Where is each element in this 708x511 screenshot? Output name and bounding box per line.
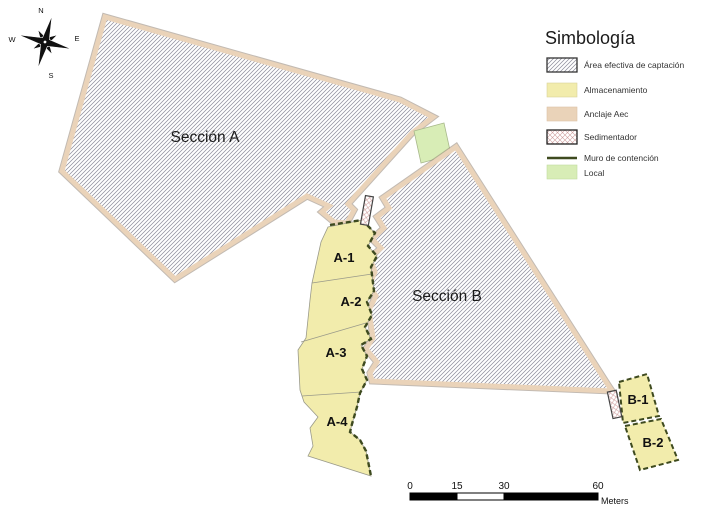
legend-hatch-icon [547, 58, 577, 72]
compass-rose: N E S W [8, 6, 79, 80]
compass-north-label: N [38, 6, 43, 15]
storage-block-b [619, 374, 678, 470]
area-label-b2: B-2 [643, 435, 664, 450]
legend: Simbología Área efectiva de captación Al… [545, 28, 684, 179]
legend-item-label: Muro de contención [584, 153, 659, 163]
area-label-a4: A-4 [327, 414, 349, 429]
compass-south-label: S [48, 71, 53, 80]
scale-segment-black-1 [410, 493, 457, 500]
section-b-polygon [366, 147, 612, 391]
legend-item-label: Local [584, 168, 604, 178]
sedimentador-a [360, 196, 373, 226]
legend-item-label: Área efectiva de captación [584, 60, 684, 70]
area-label-a3: A-3 [326, 345, 347, 360]
legend-green-swatch [547, 165, 577, 179]
legend-peach-swatch [547, 107, 577, 121]
area-label-a1: A-1 [334, 250, 355, 265]
legend-crosshatch-icon [547, 130, 577, 144]
site-plan-map: Sección A Sección B A-1 A-2 A-3 A-4 B-1 … [0, 0, 708, 511]
scale-tick-0: 0 [407, 481, 413, 492]
scale-tick-15: 15 [451, 481, 463, 492]
legend-item-label: Almacenamiento [584, 85, 648, 95]
legend-item-label: Anclaje Aec [584, 109, 629, 119]
legend-yellow-swatch [547, 83, 577, 97]
section-b-label: Sección B [412, 288, 482, 305]
legend-title: Simbología [545, 28, 636, 48]
area-label-a2: A-2 [341, 294, 362, 309]
scale-unit-label: Meters [601, 496, 629, 506]
legend-item-label: Sedimentador [584, 132, 637, 142]
scale-tick-30: 30 [498, 481, 510, 492]
scale-segment-black-2 [504, 493, 598, 500]
map-svg: Sección A Sección B A-1 A-2 A-3 A-4 B-1 … [0, 0, 708, 511]
compass-east-label: E [74, 34, 79, 43]
compass-west-label: W [8, 35, 16, 44]
scale-bar: 0 15 30 60 Meters [407, 481, 629, 506]
scale-tick-60: 60 [592, 481, 604, 492]
section-a-label: Sección A [171, 129, 241, 146]
section-b [366, 147, 612, 391]
compass-star-icon [12, 9, 78, 75]
area-label-b1: B-1 [628, 392, 649, 407]
scale-segment-white [457, 493, 504, 500]
